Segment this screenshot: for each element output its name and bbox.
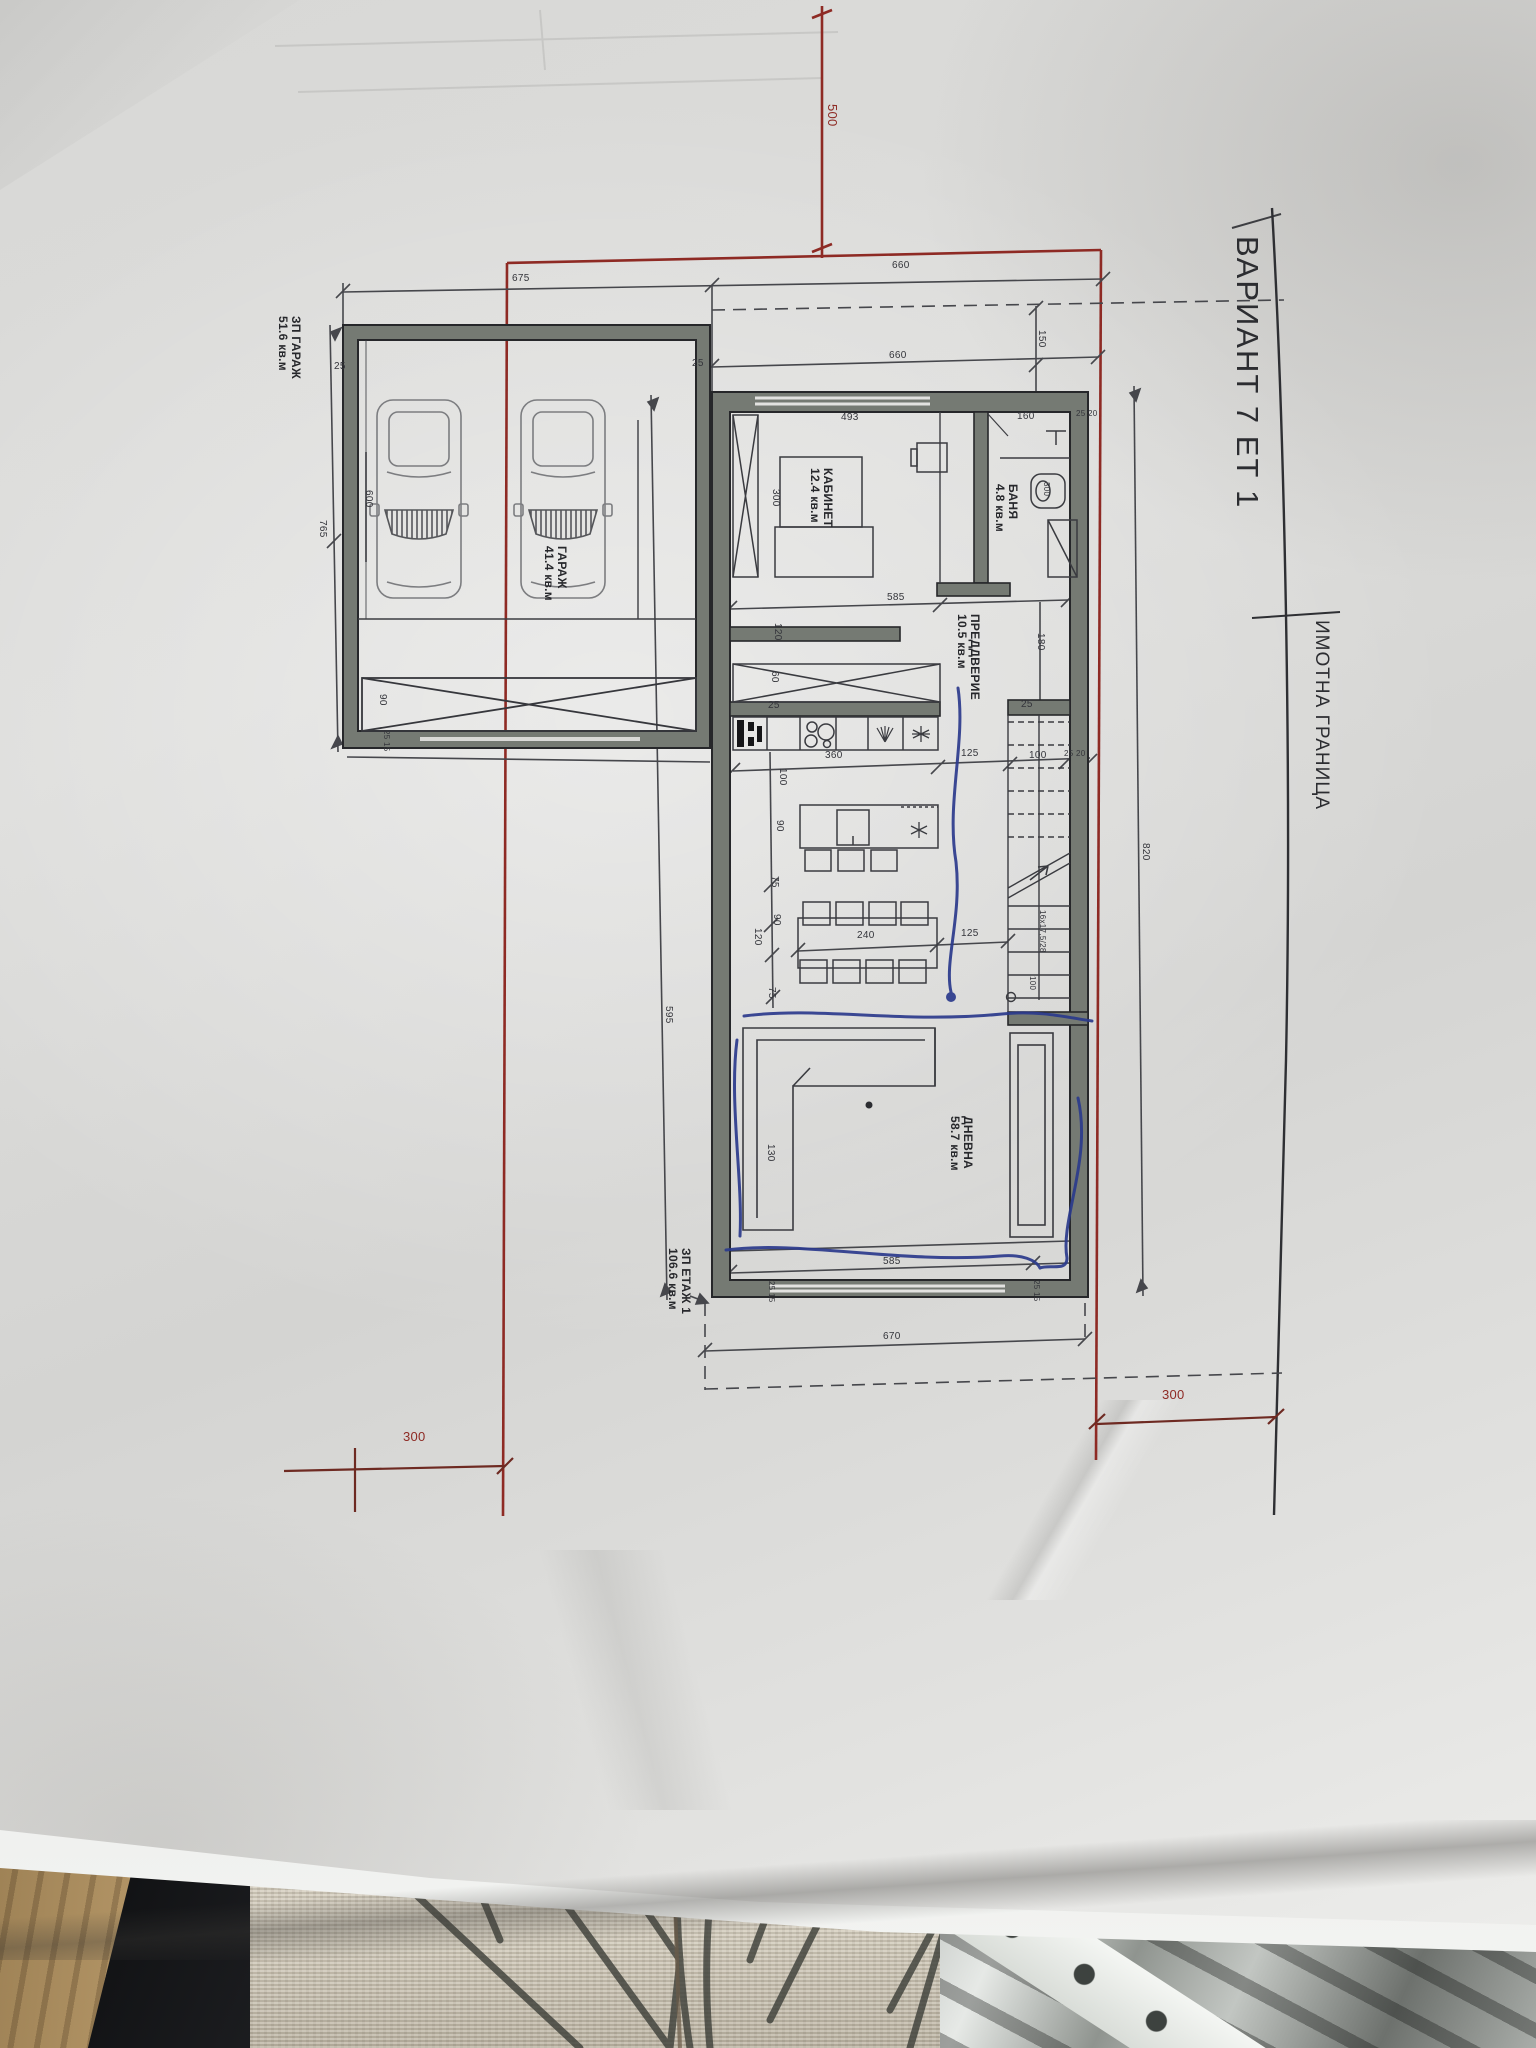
- room-label: ДНЕВНА 58.7 кв.м: [949, 1116, 974, 1171]
- plan-title: ВАРИАНТ 7 ЕТ 1: [1230, 236, 1263, 509]
- dim-label: 25: [692, 359, 704, 370]
- dim-label: 100: [1029, 751, 1047, 762]
- dim-label: 585: [887, 593, 905, 604]
- dim-label: 360: [825, 751, 843, 762]
- dim-label: 820: [1140, 843, 1151, 861]
- setback-dim-label: 300: [1162, 1388, 1185, 1402]
- room-label: КАБИНЕТ 12.4 кв.м: [809, 468, 834, 527]
- dining-set: [798, 902, 937, 983]
- setback-dim-label: 500: [825, 104, 839, 127]
- office-furniture: [733, 415, 947, 577]
- bleed-through-lines: [275, 10, 838, 92]
- kitchen-island: [800, 805, 938, 871]
- car-top-view: [370, 400, 612, 598]
- dim-label: 670: [883, 1332, 901, 1343]
- entry-closet: [733, 664, 940, 702]
- dim-label: 90: [377, 694, 388, 706]
- dim-label: 75: [769, 876, 780, 888]
- dim-label: 25: [334, 362, 346, 373]
- property-boundary-label: ИМОТНА ГРАНИЦА: [1311, 620, 1331, 810]
- area-summary-label: ЗП ГАРАЖ 51.6 кв.м: [277, 316, 302, 379]
- living-room-furniture: [743, 1028, 1053, 1237]
- garage-block: [343, 325, 710, 748]
- dim-label: 595: [663, 1006, 674, 1024]
- dim-label: 493: [841, 413, 859, 424]
- dim-label: 25: [768, 701, 780, 712]
- dim-label: 765: [317, 520, 328, 538]
- dim-label: 25 15: [382, 730, 390, 752]
- dim-label: 75: [766, 987, 777, 999]
- dim-label: 300: [1042, 482, 1050, 496]
- dim-label: 16x17,5/28: [1038, 910, 1046, 953]
- dim-label: 180: [1035, 633, 1046, 651]
- dim-label: 600: [363, 490, 374, 508]
- dim-label: 90: [771, 914, 782, 926]
- dim-label: 585: [883, 1257, 901, 1268]
- dashed-lines: [705, 300, 1284, 1390]
- photo-of-floor-plan: ВАРИАНТ 7 ЕТ 1 ИМОТНА ГРАНИЦА КАБИНЕТ 12…: [0, 0, 1536, 2048]
- dim-label: 120: [772, 623, 783, 641]
- room-label: ПРЕДДВЕРИЕ 10.5 кв.м: [956, 614, 981, 700]
- dim-label: 25 20: [1076, 410, 1098, 418]
- dim-label: 660: [889, 351, 907, 362]
- dim-label: 125: [961, 749, 979, 760]
- dim-label: 25 15: [1032, 1280, 1040, 1302]
- dim-label: 160: [1017, 412, 1035, 423]
- dim-label: 660: [892, 261, 910, 272]
- dim-label: 25: [1021, 700, 1033, 711]
- dim-label: 120: [752, 928, 763, 946]
- dim-label: 90: [774, 820, 785, 832]
- dim-label: 130: [765, 1144, 776, 1162]
- setback-dim-lines: [284, 1409, 1284, 1512]
- kitchen-counter: [733, 717, 938, 750]
- dim-label: 675: [512, 274, 530, 285]
- dim-label: 300: [770, 489, 781, 507]
- room-label: БАНЯ 4.8 кв.м: [994, 484, 1019, 532]
- dim-label: 25 20: [1064, 750, 1086, 758]
- room-label: ГАРАЖ 41.4 кв.м: [543, 546, 568, 601]
- dim-label: 60: [769, 671, 780, 683]
- dim-label: 100: [777, 768, 788, 786]
- setback-dim-label: 300: [403, 1430, 426, 1444]
- dim-label: 125: [961, 929, 979, 940]
- dim-label: 100: [1028, 976, 1036, 990]
- dim-label: 150: [1036, 330, 1047, 348]
- dim-label: 25 15: [767, 1281, 775, 1303]
- dim-label: 240: [857, 931, 875, 942]
- area-summary-label: ЗП ЕТАЖ 1 106.6 кв.м: [667, 1248, 692, 1314]
- floor-plan-drawing: [0, 0, 1536, 2048]
